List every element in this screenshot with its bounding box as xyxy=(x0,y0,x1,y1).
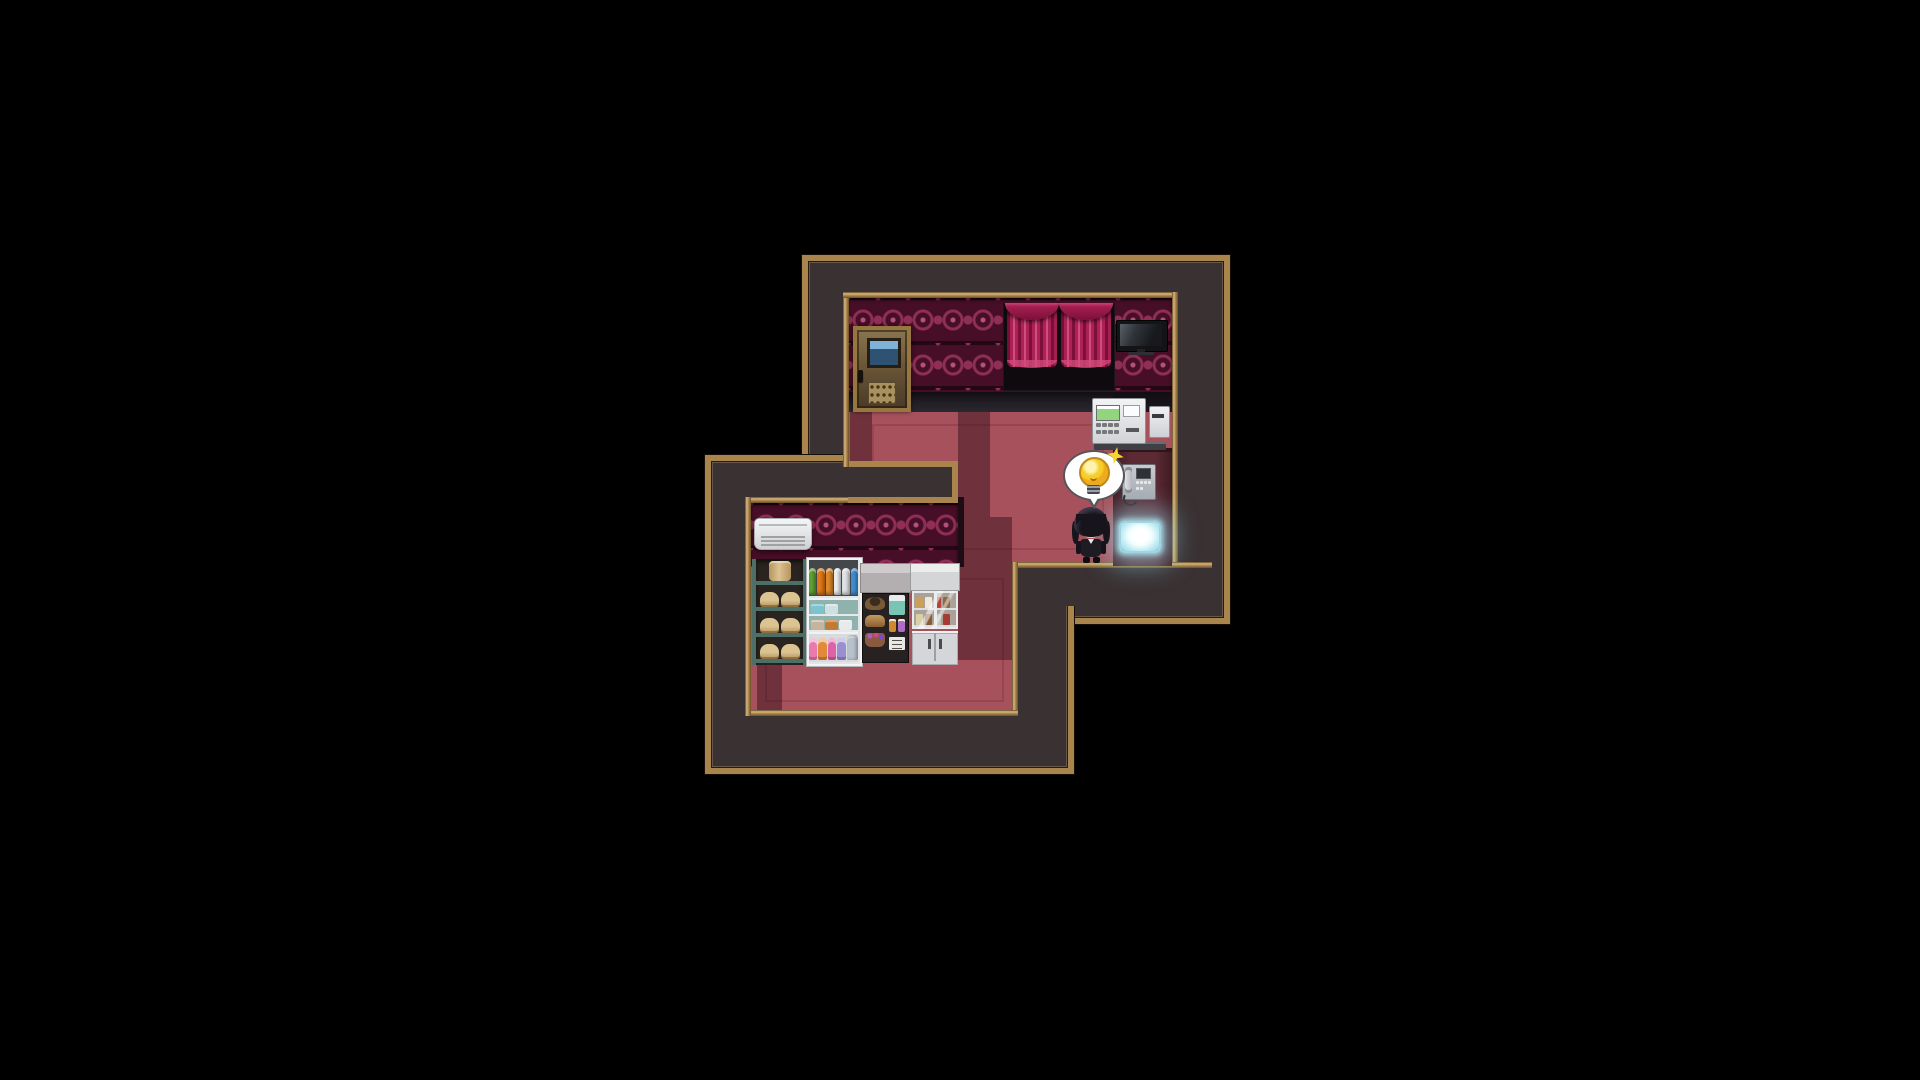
shelf-row xyxy=(756,611,803,637)
inner-frame xyxy=(1012,562,1018,716)
printer-slot xyxy=(1152,414,1164,418)
corridor-shadow xyxy=(958,517,1012,660)
bulb-filament xyxy=(1090,474,1097,481)
lightbulb-icon xyxy=(1079,457,1110,488)
drink-bottle xyxy=(837,638,845,660)
phone-key xyxy=(1148,481,1151,484)
air-conditioner xyxy=(754,518,812,550)
packaged-item xyxy=(825,604,838,614)
corridor-right-wall xyxy=(1018,568,1056,756)
bread-loaf xyxy=(781,644,800,659)
drink-bottle xyxy=(826,568,833,595)
atm-keypad xyxy=(1096,423,1122,435)
door-split xyxy=(934,633,936,661)
character-arm xyxy=(1101,541,1106,554)
phone-key xyxy=(1136,487,1139,490)
curtain-right xyxy=(1061,305,1111,367)
wall-shadow xyxy=(850,412,872,461)
drink-cooler xyxy=(806,557,863,667)
phone-key xyxy=(1140,487,1143,490)
dividing-wall-top xyxy=(848,461,958,503)
inner-frame xyxy=(1172,292,1178,568)
drink-bottle xyxy=(809,638,817,660)
curtain-left xyxy=(1007,305,1057,367)
atm-machine[interactable] xyxy=(1092,398,1170,452)
idea-balloon xyxy=(1061,448,1125,514)
wooden-door[interactable] xyxy=(853,326,911,412)
drink-bottle xyxy=(809,568,816,595)
packaged-item xyxy=(811,604,824,614)
door-handle xyxy=(939,639,942,649)
bread-barrel xyxy=(769,561,791,581)
drink-bottle xyxy=(842,568,849,595)
drink-bottle xyxy=(818,638,826,660)
packaged-item xyxy=(825,620,838,630)
atm-key xyxy=(1114,423,1119,427)
wall-tv xyxy=(1116,320,1166,356)
character-arm xyxy=(1076,541,1081,554)
phone-key xyxy=(1144,481,1147,484)
inner-frame xyxy=(745,497,751,716)
atm-card-slot xyxy=(1126,428,1139,432)
balloon-tail-fill xyxy=(1087,493,1101,505)
shelf-row xyxy=(809,616,858,632)
glowing-panel[interactable] xyxy=(1119,521,1161,553)
atm-panel xyxy=(1123,405,1140,417)
packaged-item xyxy=(839,620,852,630)
bread-item xyxy=(865,615,885,627)
berry-basket xyxy=(865,633,885,647)
bread-loaf xyxy=(760,592,779,607)
shelf-row xyxy=(809,600,858,616)
inner-frame xyxy=(1012,562,1212,568)
bread-loaf xyxy=(760,618,779,633)
wall-phone[interactable] xyxy=(1122,464,1154,504)
door-window xyxy=(867,338,901,368)
inner-frame xyxy=(843,292,1178,298)
atm-key xyxy=(1108,423,1113,427)
packaged-item xyxy=(811,620,824,630)
cooler-middle-shelves xyxy=(809,598,858,634)
character-foot xyxy=(1093,557,1100,563)
door-sign xyxy=(868,382,896,404)
tv-screen xyxy=(1120,324,1162,346)
wall-shadow xyxy=(958,412,990,517)
drink-bottle xyxy=(817,568,824,595)
shelf-row xyxy=(756,559,803,585)
atm-key xyxy=(1102,423,1107,427)
curtained-window xyxy=(1003,303,1115,391)
bread-loaf xyxy=(781,592,800,607)
atm-key xyxy=(1102,430,1107,434)
storage-cabinet xyxy=(910,563,960,665)
atm-key xyxy=(1114,430,1119,434)
cooler-top-shelf xyxy=(809,560,858,596)
atm-printer-unit xyxy=(1149,406,1170,438)
door-handle xyxy=(858,370,863,382)
bulb-base xyxy=(1087,485,1100,494)
goods-shelf-body xyxy=(862,593,909,663)
phone-handset xyxy=(1125,467,1132,493)
atm-screen xyxy=(1096,405,1120,421)
game-viewport[interactable] xyxy=(0,0,1920,1080)
price-sign xyxy=(889,637,905,650)
goods-shelf xyxy=(860,563,911,665)
drink-bottle xyxy=(851,568,858,595)
atm-key xyxy=(1096,423,1101,427)
water-jug xyxy=(847,635,858,660)
phone-screen xyxy=(1136,468,1151,479)
inner-frame xyxy=(745,710,1018,716)
shelf-row xyxy=(756,585,803,611)
drink-bottle xyxy=(828,638,836,660)
phone-key xyxy=(1140,481,1143,484)
phone-key xyxy=(1136,481,1139,484)
glass-mullion xyxy=(934,591,937,629)
bread-shelf xyxy=(752,559,807,665)
inner-frame xyxy=(843,292,849,467)
atm-key xyxy=(1096,430,1101,434)
counter-top xyxy=(860,563,911,593)
shelf-row xyxy=(756,637,803,663)
boxed-item xyxy=(889,595,905,615)
hat-item xyxy=(865,597,885,610)
door-handle xyxy=(928,639,931,649)
atm-key xyxy=(1108,430,1113,434)
bread-loaf xyxy=(781,618,800,633)
cabinet-top xyxy=(910,563,960,591)
cooler-bottom-shelf xyxy=(809,634,858,662)
drink-bottle xyxy=(834,568,841,595)
tv-base xyxy=(1128,352,1154,355)
phone-keypad xyxy=(1136,481,1151,491)
bread-loaf xyxy=(760,644,779,659)
jar-purple xyxy=(898,619,905,632)
jar-amber xyxy=(889,619,896,632)
character-foot xyxy=(1083,557,1090,563)
